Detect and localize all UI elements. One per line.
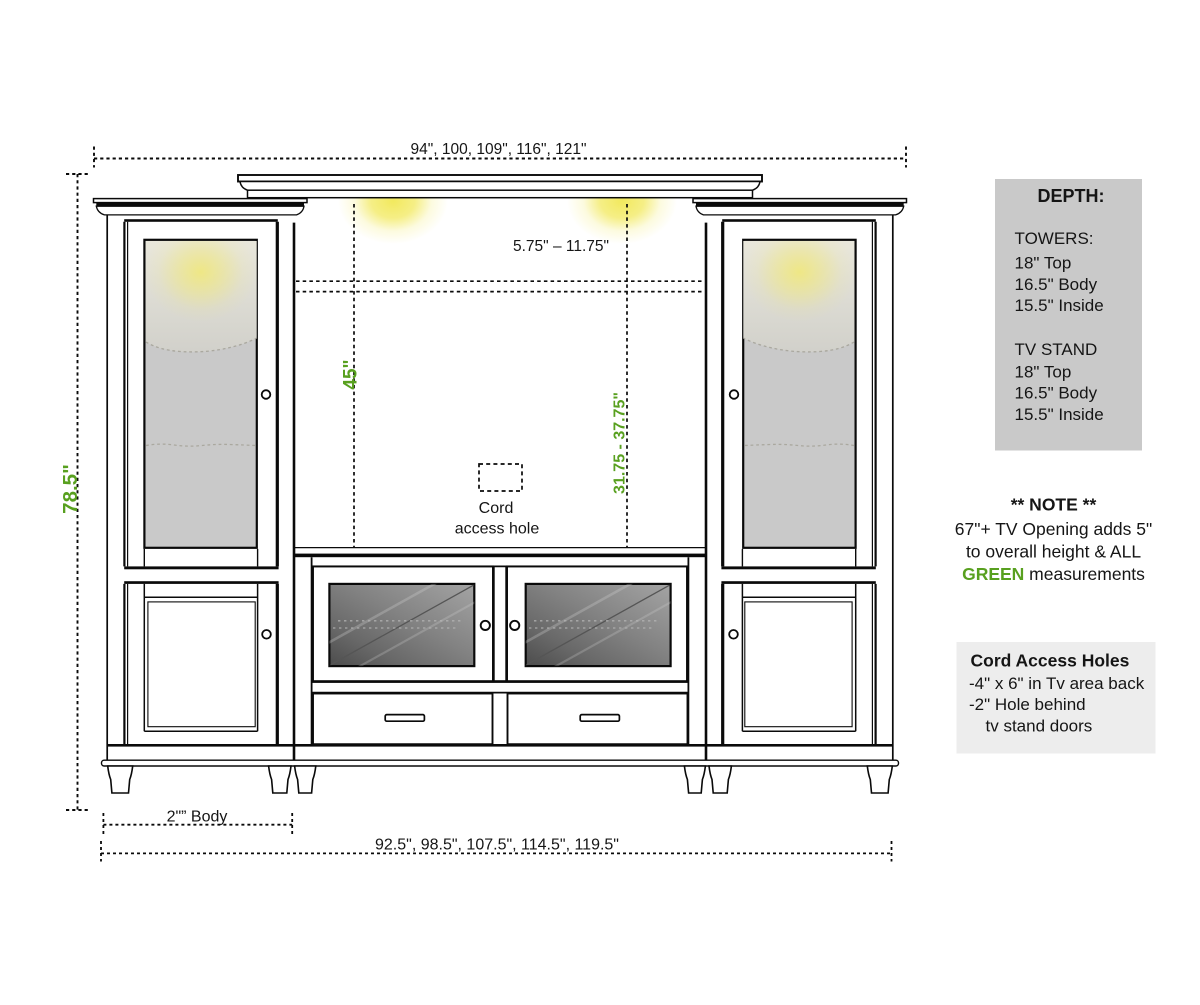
svg-text:** NOTE **: ** NOTE ** <box>1011 495 1097 515</box>
svg-text:TV STAND: TV STAND <box>1015 340 1098 359</box>
svg-text:15.5" Inside: 15.5" Inside <box>1015 296 1104 315</box>
svg-text:92.5", 98.5", 107.5", 114.5",: 92.5", 98.5", 107.5", 114.5", 119.5" <box>375 837 619 854</box>
svg-text:Cord: Cord <box>479 500 514 517</box>
svg-text:94", 100, 109", 116", 121": 94", 100, 109", 116", 121" <box>411 141 587 158</box>
svg-text:GREEN measurements: GREEN measurements <box>962 564 1145 584</box>
svg-text:16.5" Body: 16.5" Body <box>1015 275 1098 294</box>
svg-text:-2" Hole behind: -2" Hole behind <box>969 695 1086 714</box>
svg-text:TOWERS:: TOWERS: <box>1015 229 1094 248</box>
svg-text:78.5": 78.5" <box>59 464 82 514</box>
svg-text:15.5" Inside: 15.5" Inside <box>1015 405 1104 424</box>
svg-text:18" Top: 18" Top <box>1015 254 1072 273</box>
svg-text:67"+ TV Opening adds 5": 67"+ TV Opening adds 5" <box>955 519 1152 539</box>
svg-text:2"” Body: 2"” Body <box>167 809 228 826</box>
svg-text:DEPTH:: DEPTH: <box>1038 186 1105 206</box>
svg-text:45": 45" <box>341 359 362 389</box>
svg-text:31.75 - 37.75": 31.75 - 37.75" <box>612 392 629 494</box>
svg-text:18" Top: 18" Top <box>1015 363 1072 382</box>
svg-text:Cord Access Holes: Cord Access Holes <box>971 651 1130 671</box>
svg-text:access hole: access hole <box>455 521 540 538</box>
svg-text:tv stand doors: tv stand doors <box>986 717 1093 736</box>
svg-text:to overall height & ALL: to overall height & ALL <box>966 542 1141 562</box>
svg-text:5.75" – 11.75": 5.75" – 11.75" <box>513 238 609 255</box>
svg-text:-4" x 6" in Tv area back: -4" x 6" in Tv area back <box>969 674 1145 693</box>
svg-text:16.5" Body: 16.5" Body <box>1015 384 1098 403</box>
